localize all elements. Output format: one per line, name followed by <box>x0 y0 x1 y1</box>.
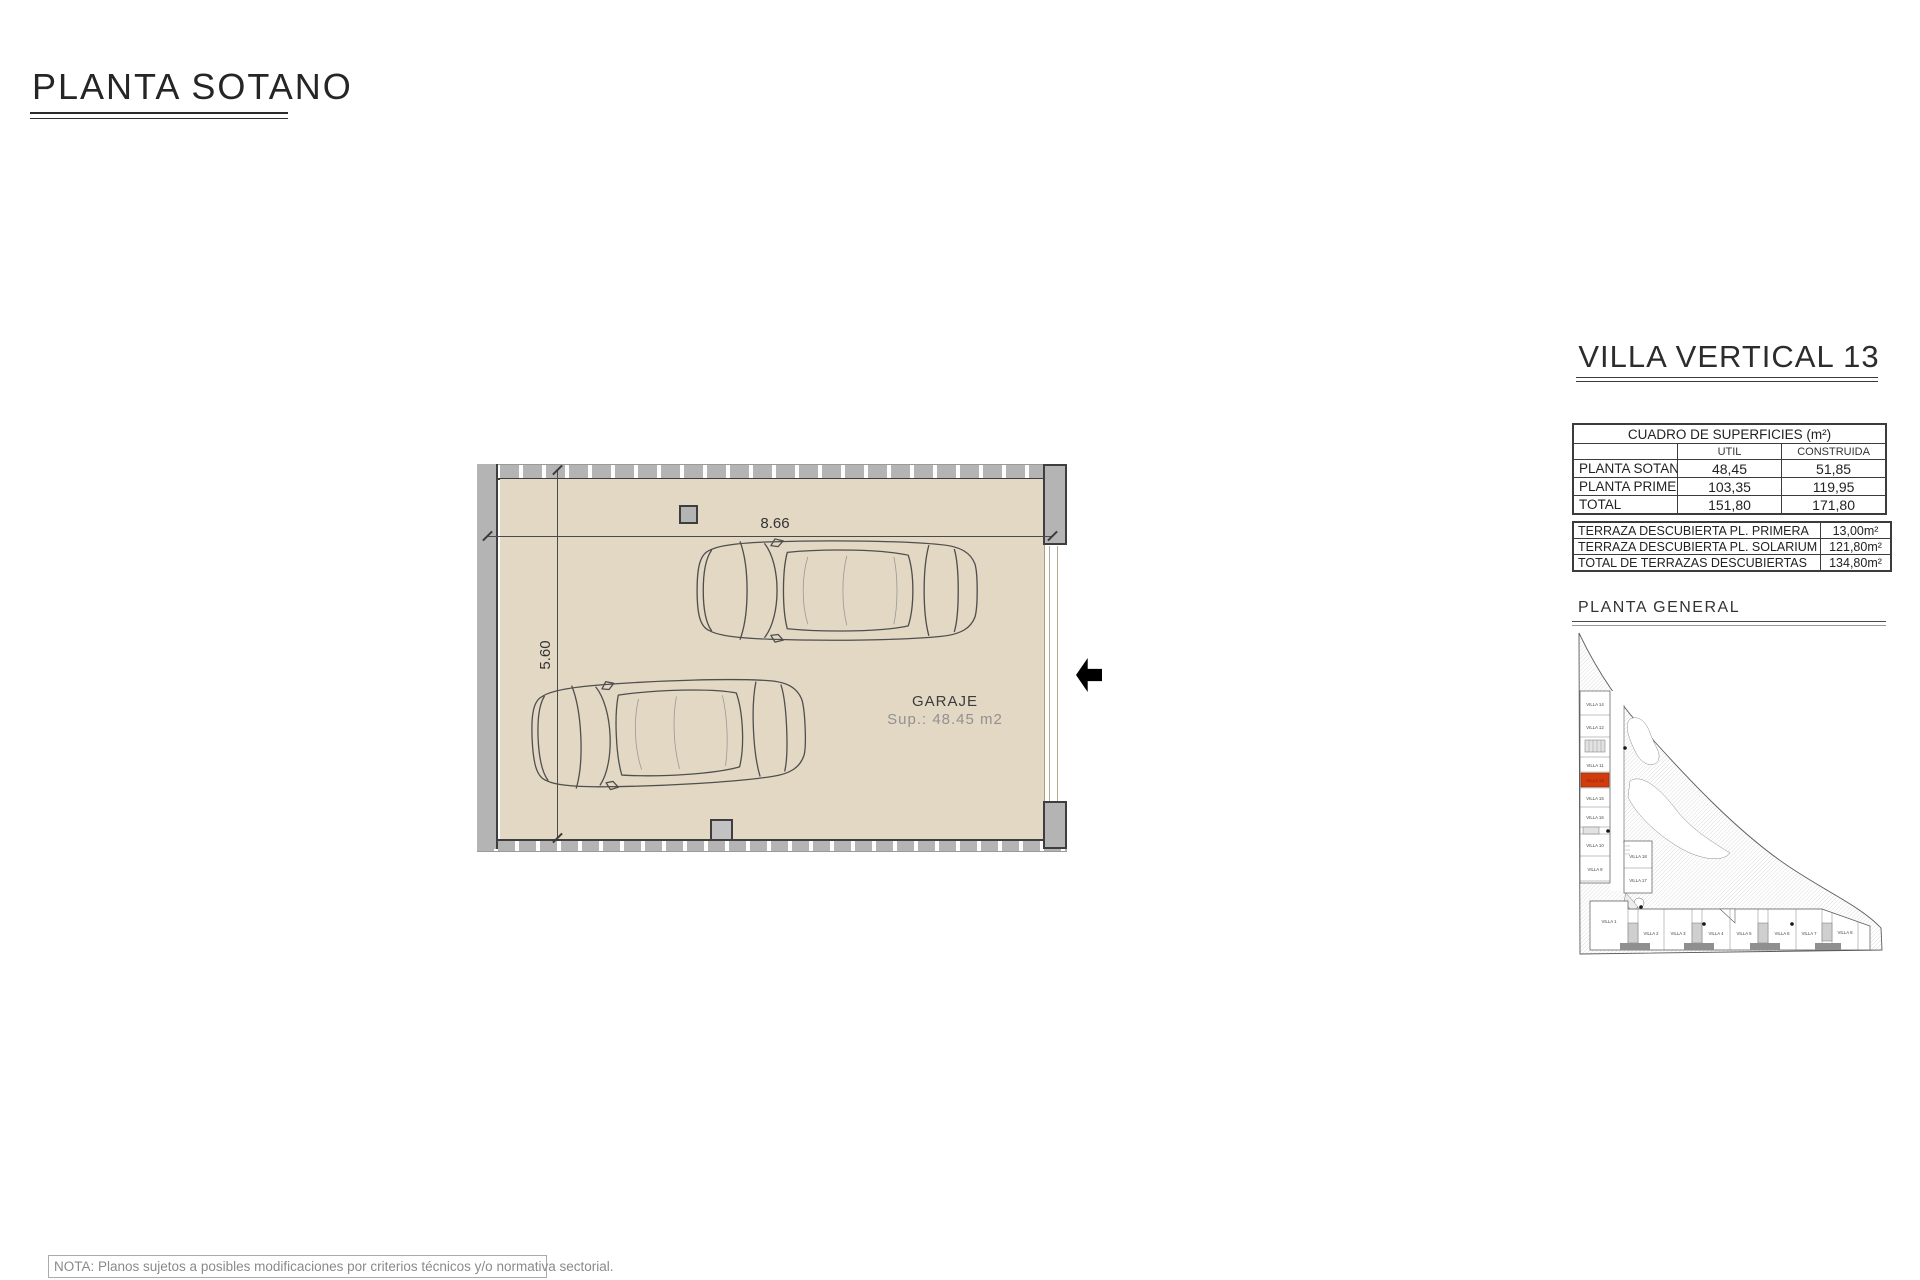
table-row: TOTAL DE TERRAZAS DESCUBIERTAS 134,80m² <box>1573 555 1891 572</box>
villa-label: VILLA 5 <box>1736 931 1752 936</box>
row-label: TERRAZA DESCUBIERTA PL. PRIMERA <box>1573 522 1821 539</box>
dimension-height-label: 5.60 <box>537 625 553 685</box>
villa-title-underline-2 <box>1576 381 1878 382</box>
dimension-line-vertical <box>557 470 558 838</box>
row-value: 121,80m² <box>1821 539 1892 555</box>
dimension-width-label: 8.66 <box>745 515 805 532</box>
table-row: PLANTA PRIMERA 103,35 119,95 <box>1573 478 1886 496</box>
stairs-block <box>1585 740 1605 752</box>
stairs-block <box>1583 827 1599 834</box>
villa-label: VILLA 3 <box>1670 931 1686 936</box>
page-title-underline <box>30 112 288 114</box>
page-title-underline-2 <box>30 118 288 119</box>
terraces-table: TERRAZA DESCUBIERTA PL. PRIMERA 13,00m² … <box>1572 521 1892 572</box>
villa-label: VILLA 6 <box>1774 931 1790 936</box>
road <box>1610 691 1624 891</box>
row-value: 134,80m² <box>1821 555 1892 572</box>
row-construida-value: 171,80 <box>1782 496 1886 515</box>
villa-label: VILLA 4 <box>1708 931 1724 936</box>
page-title: PLANTA SOTANO <box>32 66 353 108</box>
car-bottom <box>530 673 808 793</box>
car-top <box>697 539 977 642</box>
row-util-value: 103,35 <box>1677 478 1781 496</box>
villa-label: VILLA 10 <box>1586 843 1604 848</box>
villa-label: VILLA 12 <box>1586 725 1604 730</box>
col-header-util: UTIL <box>1677 444 1781 460</box>
row-construida-value: 51,85 <box>1782 460 1886 478</box>
villa-label: VILLA 15 <box>1586 796 1604 801</box>
villa-label-highlighted: VILLA 13 <box>1586 778 1604 783</box>
site-plan-underline-2 <box>1572 625 1886 626</box>
site-plan-svg: VILLA 14 VILLA 12 VILLA 11 VILLA 13 VILL… <box>1572 631 1892 957</box>
villa-label: VILLA 11 <box>1586 763 1604 768</box>
row-value: 13,00m² <box>1821 522 1892 539</box>
table-row: TOTAL 151,80 171,80 <box>1573 496 1886 515</box>
table-row: UTIL CONSTRUIDA <box>1573 444 1886 460</box>
villa-label: VILLA 8 <box>1837 930 1853 935</box>
row-label: TERRAZA DESCUBIERTA PL. SOLARIUM <box>1573 539 1821 555</box>
table-row: TERRAZA DESCUBIERTA PL. SOLARIUM 121,80m… <box>1573 539 1891 555</box>
left-villa-column: VILLA 14 VILLA 12 VILLA 11 VILLA 13 VILL… <box>1580 691 1610 883</box>
row-label: PLANTA PRIMERA <box>1573 478 1677 496</box>
table-row: TERRAZA DESCUBIERTA PL. PRIMERA 13,00m² <box>1573 522 1891 539</box>
row-label: TOTAL <box>1573 496 1677 515</box>
villa-label: VILLA 14 <box>1586 702 1604 707</box>
room-area-label: Sup.: 48.45 m2 <box>870 711 1020 728</box>
villa-label: VILLA 1 <box>1601 919 1617 924</box>
villa-label: VILLA 18 <box>1629 854 1647 859</box>
row-label: TOTAL DE TERRAZAS DESCUBIERTAS <box>1573 555 1821 572</box>
row-util-value: 151,80 <box>1677 496 1781 515</box>
room-name-label: GARAJE <box>870 693 1020 710</box>
table-row: PLANTA SOTANO 48,45 51,85 <box>1573 460 1886 478</box>
villa-label: VILLA 2 <box>1643 931 1659 936</box>
surfaces-table-title: CUADRO DE SUPERFICIES (m²) <box>1573 424 1886 444</box>
col-header-construida: CONSTRUIDA <box>1782 444 1886 460</box>
villa-title-underline <box>1576 377 1878 378</box>
villa-label: VILLA 9 <box>1587 867 1603 872</box>
villa-label: VILLA 16 <box>1586 815 1604 820</box>
row-construida-value: 119,95 <box>1782 478 1886 496</box>
villa-title: VILLA VERTICAL 13 <box>1572 339 1886 375</box>
villa-label: VILLA 17 <box>1629 878 1647 883</box>
table-row: CUADRO DE SUPERFICIES (m²) <box>1573 424 1886 444</box>
site-plan-underline <box>1572 621 1886 622</box>
disclaimer-note: NOTA: Planos sujetos a posibles modifica… <box>48 1255 547 1278</box>
villa-label: VILLA 7 <box>1801 931 1817 936</box>
site-plan-title: PLANTA GENERAL <box>1578 599 1740 617</box>
dimension-line-horizontal <box>487 536 1052 537</box>
surfaces-table: CUADRO DE SUPERFICIES (m²) UTIL CONSTRUI… <box>1572 423 1887 515</box>
row-util-value: 48,45 <box>1677 460 1781 478</box>
parked-cars-drawing <box>460 450 1120 870</box>
col-header-empty <box>1573 444 1677 460</box>
row-label: PLANTA SOTANO <box>1573 460 1677 478</box>
